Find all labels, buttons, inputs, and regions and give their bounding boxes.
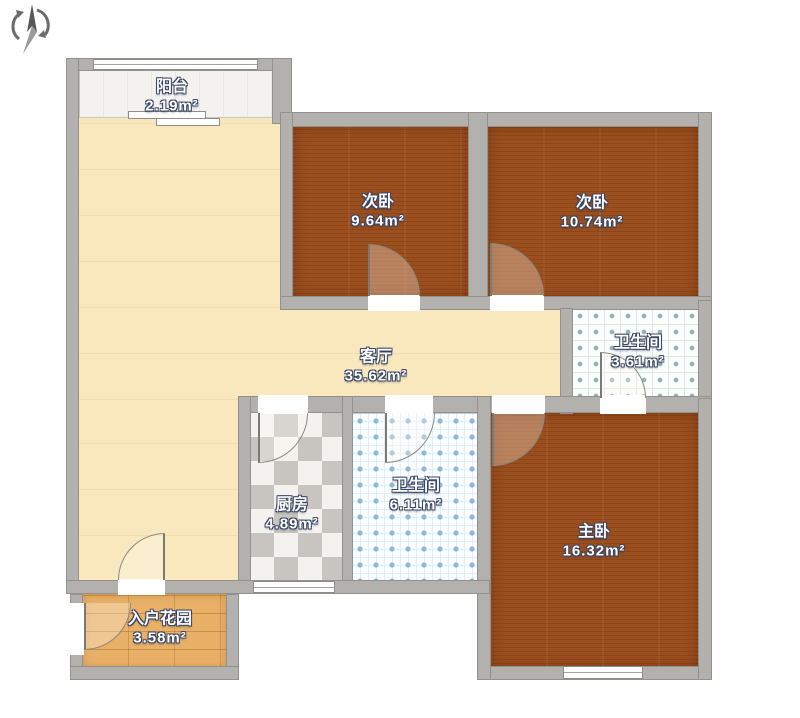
wall-bedrooms-top bbox=[280, 112, 712, 127]
balcony-label: 阳台 2.19m² bbox=[145, 79, 199, 116]
wall-outer-right-lower bbox=[698, 398, 712, 680]
master-bedroom-label: 主卧 16.32m² bbox=[563, 524, 626, 561]
living-room-floor-upper bbox=[79, 118, 281, 400]
kitchen-label: 厨房 4.89m² bbox=[265, 497, 319, 534]
entry-garden-area: 3.58m² bbox=[128, 630, 192, 648]
floor-plan-canvas: 阳台 2.19m² 次卧 9.64m² 次卧 10.74m² 客厅 35.62m… bbox=[0, 0, 800, 718]
entry-garden-name: 入户花园 bbox=[128, 611, 192, 630]
balcony-window bbox=[93, 59, 258, 70]
master-window bbox=[563, 666, 643, 679]
wall-living-kitchen bbox=[238, 396, 251, 594]
bathroom-large-label: 卫生间 6.11m² bbox=[390, 478, 443, 515]
wall-kitchen-bath bbox=[342, 396, 353, 594]
kitchen-door-gap bbox=[258, 395, 308, 414]
entry-garden-label: 入户花园 3.58m² bbox=[128, 611, 192, 648]
bedroom-left-label: 次卧 9.64m² bbox=[351, 194, 405, 231]
living-room-label: 客厅 35.62m² bbox=[345, 349, 408, 386]
living-room-area: 35.62m² bbox=[345, 368, 408, 386]
bathroom-large-name: 卫生间 bbox=[390, 478, 443, 497]
balcony-name: 阳台 bbox=[145, 79, 199, 98]
kitchen-area: 4.89m² bbox=[265, 516, 319, 534]
garden-living-door-gap bbox=[118, 579, 165, 595]
north-compass-icon bbox=[6, 2, 58, 64]
kitchen-name: 厨房 bbox=[265, 497, 319, 516]
bedroom-left-name: 次卧 bbox=[351, 194, 405, 213]
wall-bedroom-left-west bbox=[280, 112, 293, 310]
bathroom-small-label: 卫生间 3.61m² bbox=[611, 335, 665, 372]
wall-outer-left bbox=[66, 58, 79, 594]
living-room-floor-corridor bbox=[281, 308, 562, 400]
balcony-sliding-door-lower bbox=[156, 118, 220, 126]
bedroom-left-door-gap bbox=[368, 295, 420, 311]
living-room-name: 客厅 bbox=[345, 349, 408, 368]
bedroom-right-name: 次卧 bbox=[561, 195, 624, 214]
bedroom-right-area: 10.74m² bbox=[561, 214, 624, 232]
wall-outer-right-upper bbox=[698, 112, 712, 312]
bathroom-small-area: 3.61m² bbox=[611, 354, 665, 372]
kitchen-window bbox=[253, 581, 335, 593]
bedroom-right-label: 次卧 10.74m² bbox=[561, 195, 624, 232]
balcony-area: 2.19m² bbox=[145, 98, 199, 116]
master-bedroom-area: 16.32m² bbox=[563, 543, 626, 561]
master-bedroom-name: 主卧 bbox=[563, 524, 626, 543]
wall-between-bedrooms bbox=[468, 112, 488, 308]
bedroom-left-area: 9.64m² bbox=[351, 213, 405, 231]
bathroom-large-area: 6.11m² bbox=[390, 497, 443, 515]
bedroom-right-door-gap bbox=[490, 295, 544, 311]
bathroom-large-door-gap bbox=[385, 395, 433, 414]
garden-entry-door-gap bbox=[69, 603, 84, 655]
bathroom-small-name: 卫生间 bbox=[611, 335, 665, 354]
master-door-gap bbox=[492, 395, 545, 414]
wall-garden-bottom bbox=[70, 666, 239, 680]
wall-bath-master bbox=[477, 396, 491, 680]
